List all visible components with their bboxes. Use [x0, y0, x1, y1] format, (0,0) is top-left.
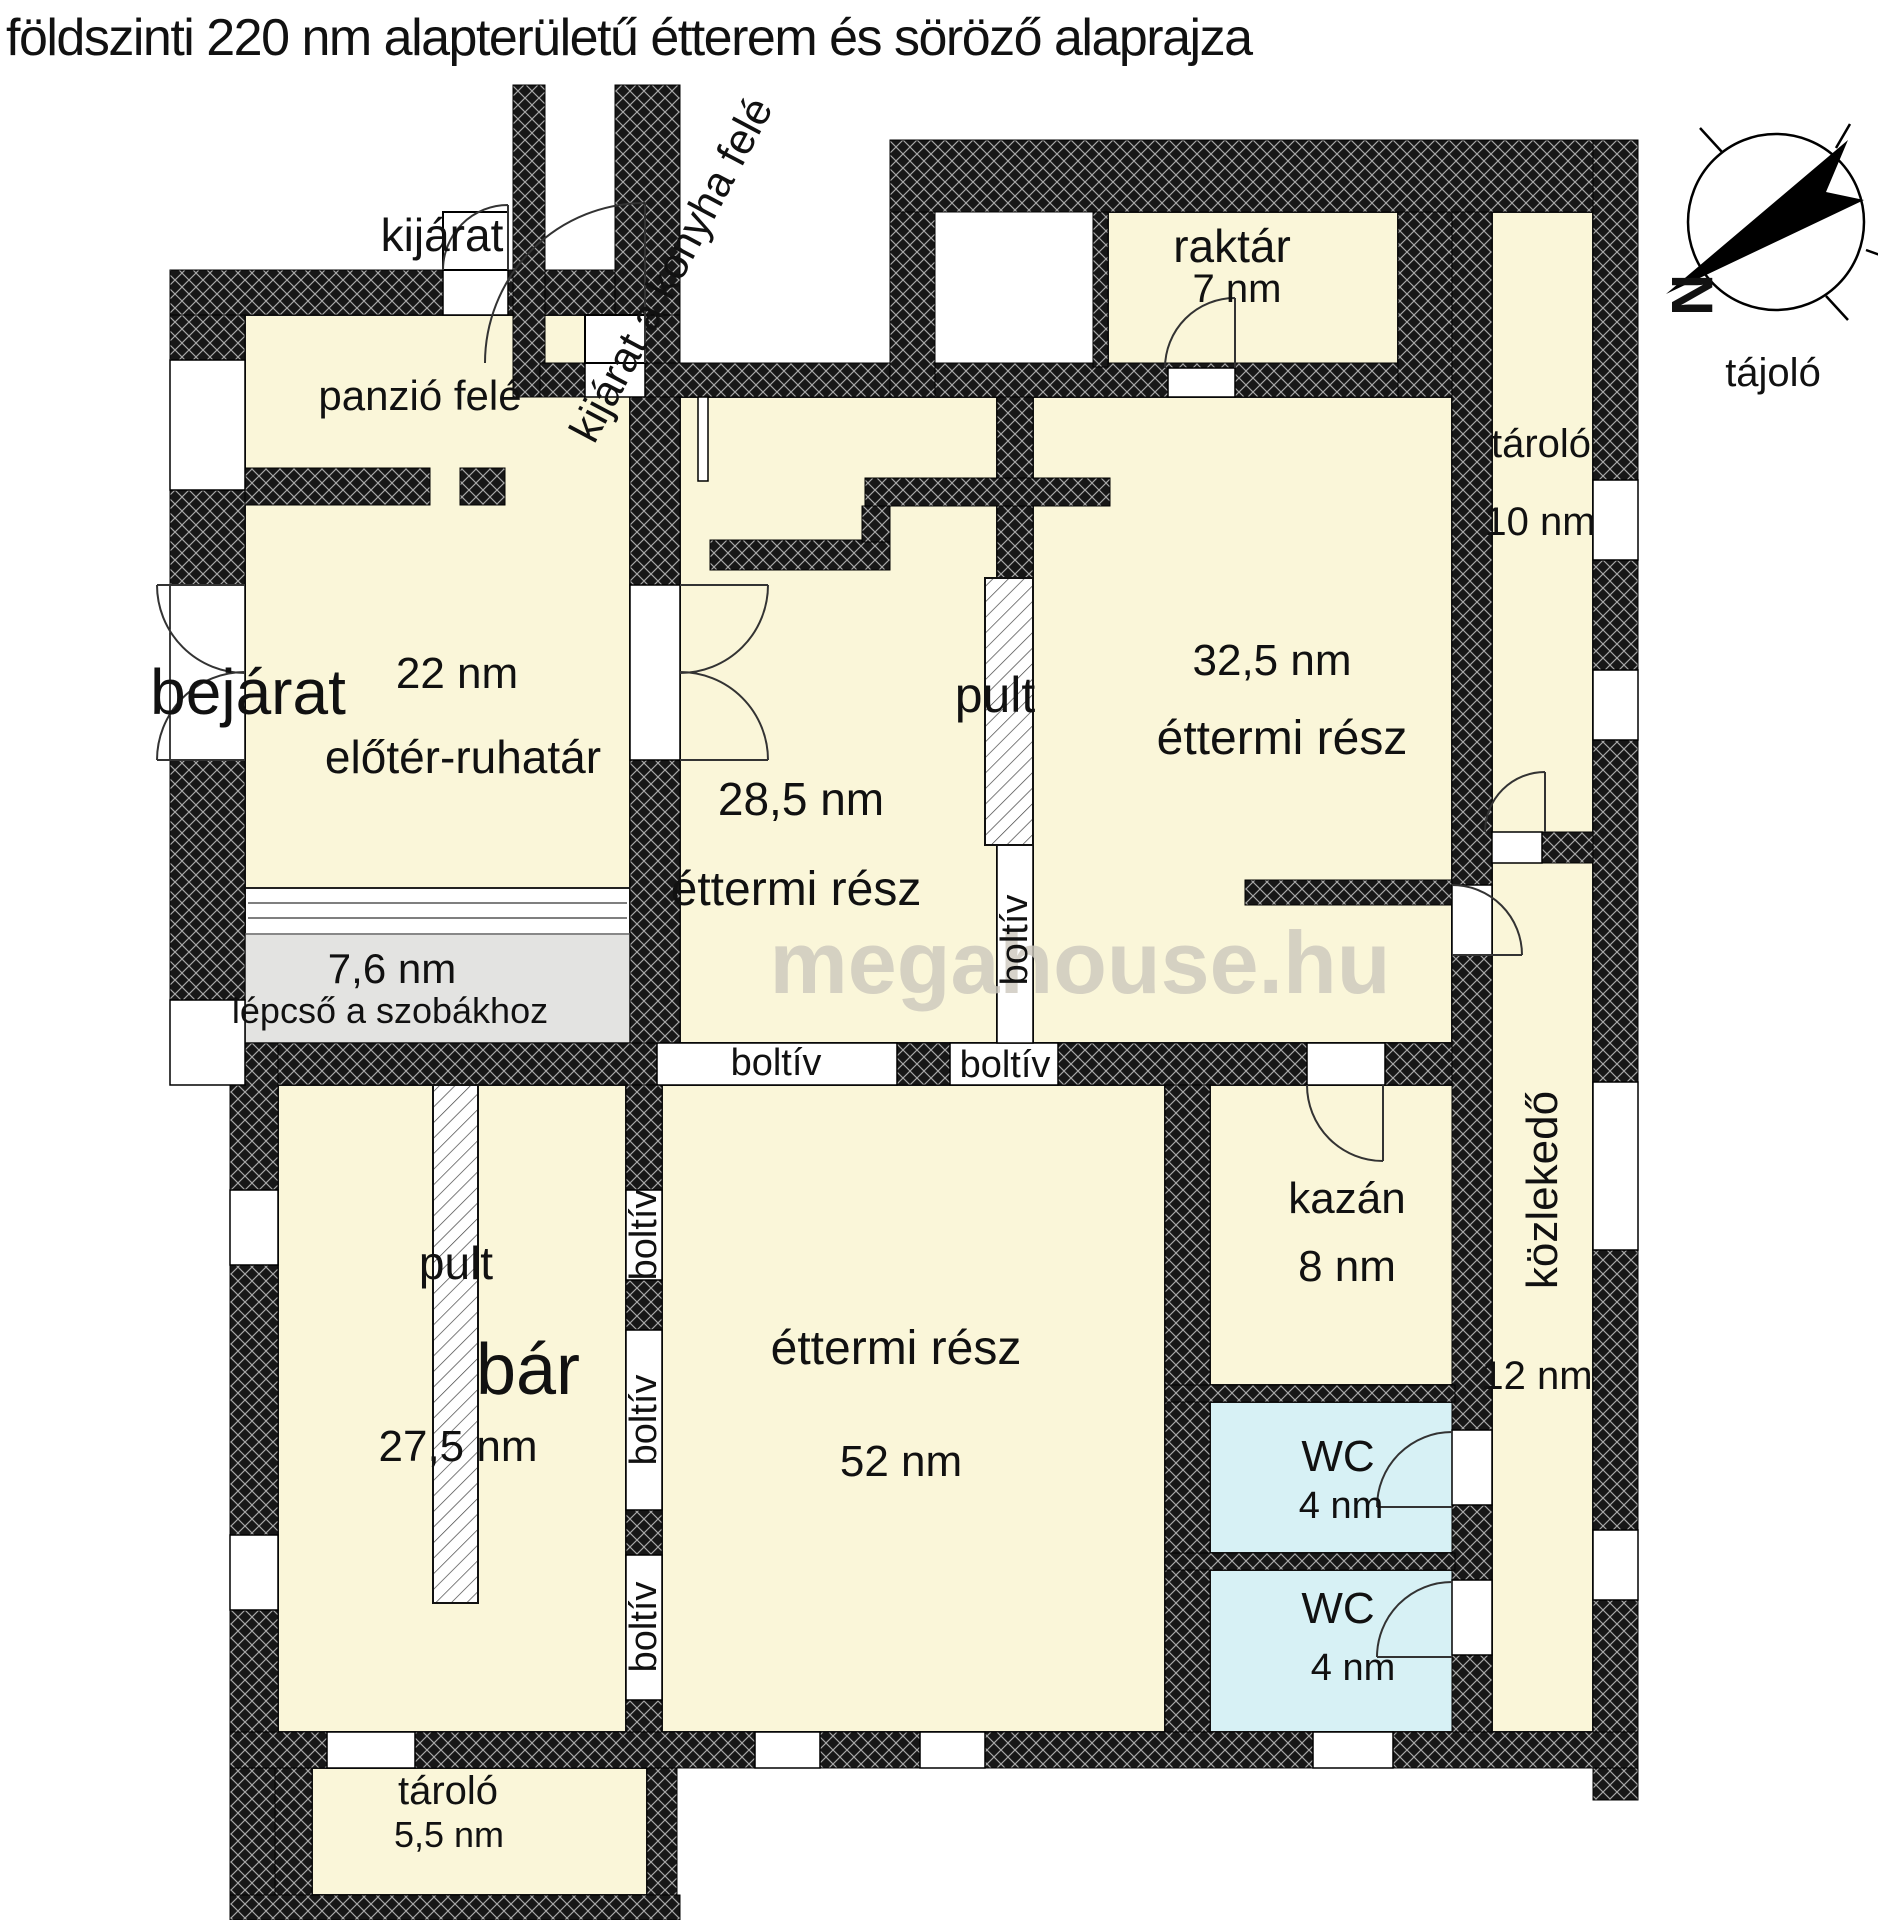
boltiv-v1: boltív	[625, 1190, 663, 1281]
konyha-exit-label: kijárat a konyha felé	[563, 91, 781, 449]
etterem2-area: 32,5 nm	[1193, 639, 1352, 683]
tarolo10-label: tároló	[1491, 424, 1591, 464]
wc1-label: WC	[1301, 1435, 1374, 1479]
etterem1-label: éttermi rész	[671, 866, 922, 914]
eloter-label: előtér-ruhatár	[325, 734, 601, 780]
lepcso-area: 7,6 nm	[328, 948, 456, 990]
bejarat-label: bejárat	[150, 660, 346, 724]
bar-label: bár	[476, 1334, 580, 1406]
bar-area: 27,5 nm	[379, 1425, 538, 1469]
lepcso-label: lépcső a szobákhoz	[232, 993, 548, 1029]
boltiv-v0: boltív	[996, 895, 1034, 986]
kozlekedo-label: közlekedő	[1521, 1091, 1565, 1289]
etterem3-label: éttermi rész	[771, 1325, 1022, 1373]
compass-north: N	[1662, 274, 1720, 316]
kijarat-label: kijárat	[381, 212, 504, 258]
watermark: megahouse.hu	[770, 919, 1391, 1007]
boltiv-h2: boltív	[960, 1046, 1051, 1084]
kazan-area: 8 nm	[1298, 1245, 1396, 1289]
pult2-label: pult	[419, 1240, 493, 1286]
tarolo55-label: tároló	[398, 1771, 498, 1811]
etterem3-area: 52 nm	[840, 1440, 962, 1484]
eloter-area: 22 nm	[396, 652, 518, 696]
raktar-label: raktár	[1173, 223, 1291, 269]
raktar-area: 7 nm	[1193, 269, 1282, 309]
etterem1-area: 28,5 nm	[718, 776, 884, 822]
tarolo10-area: 10 nm	[1484, 502, 1595, 542]
wc1-area: 4 nm	[1299, 1487, 1383, 1525]
wc2-area: 4 nm	[1311, 1649, 1395, 1687]
tarolo55-area: 5,5 nm	[394, 1817, 504, 1853]
pult1-label: pult	[955, 670, 1036, 720]
boltiv-v3: boltív	[625, 1582, 663, 1673]
wc2-label: WC	[1301, 1587, 1374, 1631]
boltiv-v2: boltív	[625, 1375, 663, 1466]
kozlekedo-area: 12 nm	[1481, 1356, 1592, 1396]
floor-plan-page: földszinti 220 nm alapterületű étterem é…	[0, 0, 1878, 1920]
tajolo-label: tájoló	[1725, 353, 1821, 393]
panzio-label: panzió felé	[318, 375, 521, 417]
kazan-label: kazán	[1288, 1177, 1405, 1221]
etterem2-label: éttermi rész	[1157, 715, 1408, 763]
labels-layer: földszinti 220 nm alapterületű étterem é…	[0, 0, 1878, 1920]
boltiv-h1: boltív	[731, 1044, 822, 1082]
plan-title: földszinti 220 nm alapterületű étterem é…	[6, 12, 1252, 64]
